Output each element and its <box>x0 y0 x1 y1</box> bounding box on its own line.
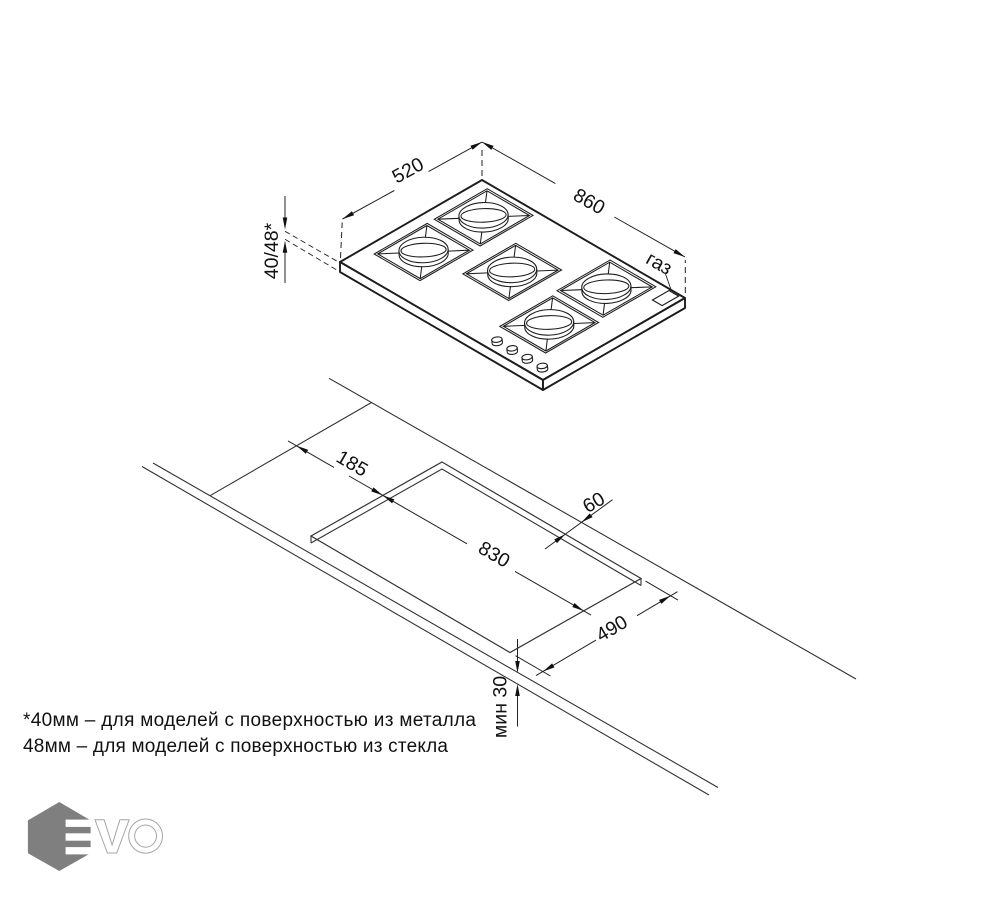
svg-text:490: 490 <box>592 611 631 647</box>
svg-text:40/48*: 40/48* <box>261 222 283 279</box>
svg-text:185: 185 <box>332 446 371 481</box>
svg-text:60: 60 <box>579 488 609 518</box>
svg-text:830: 830 <box>474 537 513 572</box>
svg-text:860: 860 <box>569 184 608 219</box>
svg-text:520: 520 <box>389 153 428 188</box>
svg-text:мин 30: мин 30 <box>490 676 512 738</box>
svg-text:*40мм – для моделей с поверхно: *40мм – для моделей с поверхностью из ме… <box>23 710 476 731</box>
svg-text:48мм – для моделей с поверхнос: 48мм – для моделей с поверхностью из сте… <box>23 736 448 757</box>
